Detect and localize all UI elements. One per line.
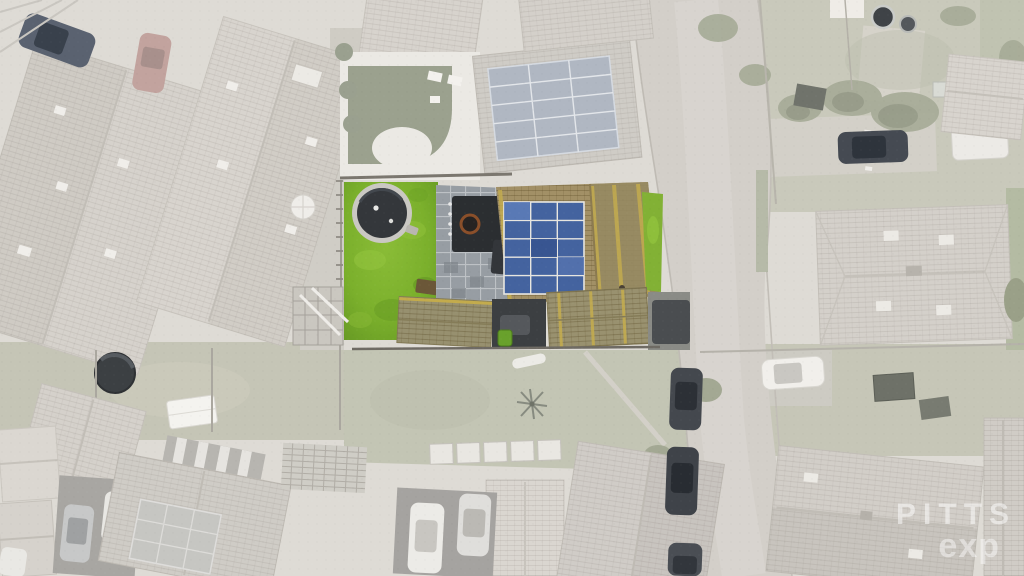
watermark-brand: exp <box>938 527 1000 565</box>
photo-grain <box>0 0 1024 576</box>
aerial-photo-canvas: PITTS exp <box>0 0 1024 576</box>
aerial-photo: PITTS exp <box>0 0 1024 576</box>
